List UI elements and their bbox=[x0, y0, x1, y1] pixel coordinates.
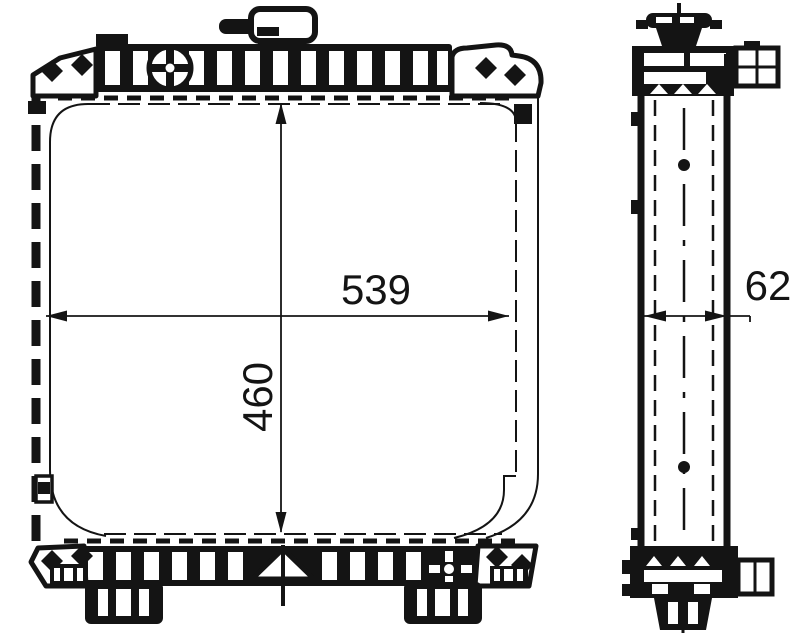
front-core-outline bbox=[28, 96, 538, 538]
front-right-tab bbox=[514, 104, 532, 124]
side-bottom-tank bbox=[622, 546, 738, 598]
side-centerline bbox=[678, 108, 690, 540]
front-bracket-bottom-right bbox=[475, 546, 536, 586]
front-mounting-foot-left bbox=[85, 582, 163, 624]
radiator-side-view bbox=[622, 3, 778, 633]
side-outlet-pipe bbox=[738, 560, 772, 594]
front-top-boss-icon bbox=[149, 47, 191, 89]
side-core-body bbox=[631, 96, 727, 548]
arrow-right-icon bbox=[488, 311, 509, 322]
front-mounting-foot-right bbox=[404, 582, 482, 624]
arrow-down-icon bbox=[276, 512, 287, 533]
front-bracket-top-left bbox=[33, 49, 96, 96]
dimension-height-value: 460 bbox=[234, 362, 281, 432]
dimension-depth: 62 bbox=[644, 262, 791, 322]
dimension-core-height: 460 bbox=[234, 103, 287, 533]
front-left-tab bbox=[28, 101, 46, 114]
front-bracket-top-right bbox=[452, 45, 541, 96]
dimension-depth-value: 62 bbox=[745, 262, 792, 309]
technical-drawing-canvas: 539 460 62 bbox=[0, 0, 800, 633]
side-filler-cap bbox=[636, 3, 722, 46]
side-mounting-foot bbox=[654, 598, 712, 633]
front-bracket-bottom-left bbox=[31, 545, 93, 586]
dimension-width-value: 539 bbox=[341, 266, 411, 313]
side-top-tank bbox=[632, 46, 734, 96]
dimension-core-width: 539 bbox=[46, 266, 509, 322]
radiator-drawing: 539 460 62 bbox=[0, 0, 800, 633]
arrow-up-icon bbox=[276, 103, 287, 124]
front-filler-neck bbox=[219, 9, 315, 41]
